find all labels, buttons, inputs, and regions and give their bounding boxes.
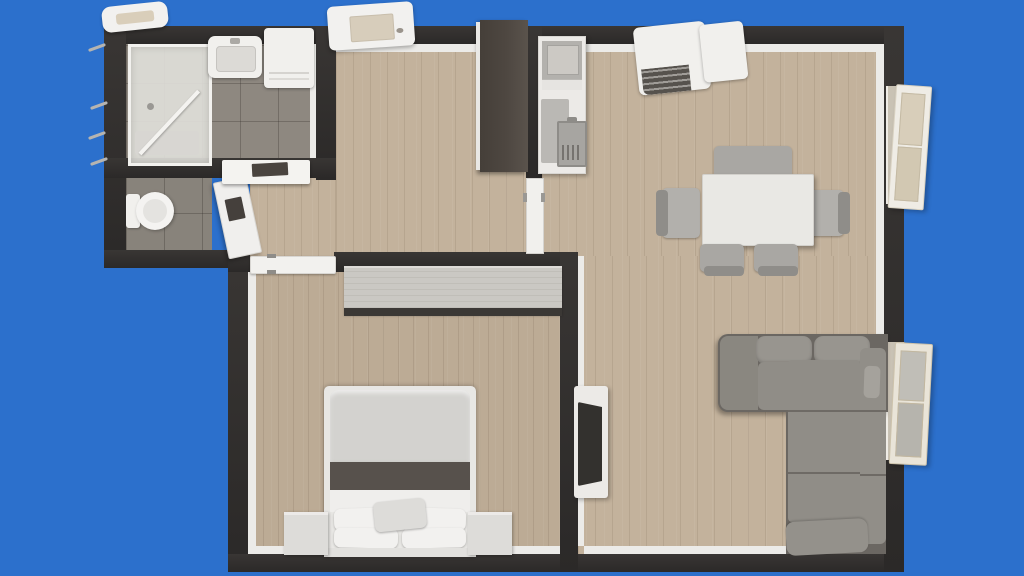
washing-machine <box>264 28 314 88</box>
bed-footboard <box>324 548 476 557</box>
tv-screen <box>578 402 602 486</box>
dining-chair-bottom-1-back <box>704 266 744 276</box>
ceiling-unit-inset <box>349 13 395 42</box>
window-panel-lower <box>894 146 922 202</box>
lining-top <box>336 44 884 52</box>
sliding-door-handle <box>267 254 276 258</box>
wardrobe-edge <box>476 22 480 170</box>
sofa-armrest <box>720 336 758 410</box>
toilet-seat <box>143 199 167 223</box>
dining-chair-bottom-2-back <box>758 266 798 276</box>
sink-faucet-icon <box>567 117 577 123</box>
basin-bowl <box>216 46 256 72</box>
shower-control-icon <box>147 103 154 110</box>
kitchen-sink <box>557 121 587 167</box>
sofa-seat-column <box>788 360 860 522</box>
cabinet-tray <box>252 162 289 177</box>
floor-plan-render <box>0 0 1024 576</box>
washer-lid-line <box>269 72 309 74</box>
nightstand-left <box>284 512 328 555</box>
glass-pane-upper <box>898 350 927 401</box>
wash-basin <box>208 36 262 78</box>
sink-drain-grooves <box>562 145 580 160</box>
wall-left <box>104 26 126 268</box>
open-window-bottom-right <box>889 342 935 464</box>
glass-shower <box>128 44 212 166</box>
cooktop-front <box>542 79 582 90</box>
pocket-door-handle <box>523 193 527 202</box>
light-wardrobe-base-shadow <box>344 308 562 316</box>
oven-grill <box>641 64 691 95</box>
washer-lid-line2 <box>269 78 309 80</box>
toilet-bowl <box>136 192 174 230</box>
oven-box-2 <box>699 21 749 83</box>
open-window-top-right <box>888 84 934 208</box>
dining-chair-right-back <box>838 192 850 234</box>
nightstand-right <box>468 512 512 555</box>
dining-chair-left-back <box>656 190 668 236</box>
pocket-door-handle2 <box>541 193 545 202</box>
wall-bedroom-left <box>228 250 248 572</box>
glass-pane-lower <box>895 402 924 457</box>
sofa-lumbar-pillow <box>863 366 880 399</box>
lining-bedroom-left <box>248 272 256 554</box>
pocket-door <box>526 178 544 254</box>
basin-faucet-icon <box>230 38 240 44</box>
light-wardrobe <box>344 266 562 314</box>
dark-wardrobe <box>480 20 528 172</box>
sofa-seam-2 <box>788 472 860 474</box>
kitchen-counter <box>538 36 586 174</box>
bedroom-sliding-door <box>250 256 336 274</box>
sofa-bottom-cushion <box>785 518 869 556</box>
bed-pillow-4 <box>402 527 466 548</box>
toilet-door-inset <box>225 196 246 221</box>
sliding-door-handle2 <box>267 270 276 274</box>
bed-duvet <box>330 390 470 466</box>
stove-oven-unit <box>632 12 754 101</box>
cooktop-surface <box>547 45 579 75</box>
ceiling-unit-knob-icon <box>396 28 403 33</box>
cooktop <box>542 41 582 89</box>
ceiling-unit-top-center <box>327 1 416 51</box>
dining-table <box>702 174 814 246</box>
sofa-seam-1 <box>788 410 860 412</box>
bed-accent-pillow <box>373 497 428 532</box>
skylight-inset <box>116 10 155 25</box>
hall-wall-cabinet <box>222 160 310 184</box>
bed-stripe <box>330 462 470 490</box>
window-panel-upper <box>898 93 926 147</box>
